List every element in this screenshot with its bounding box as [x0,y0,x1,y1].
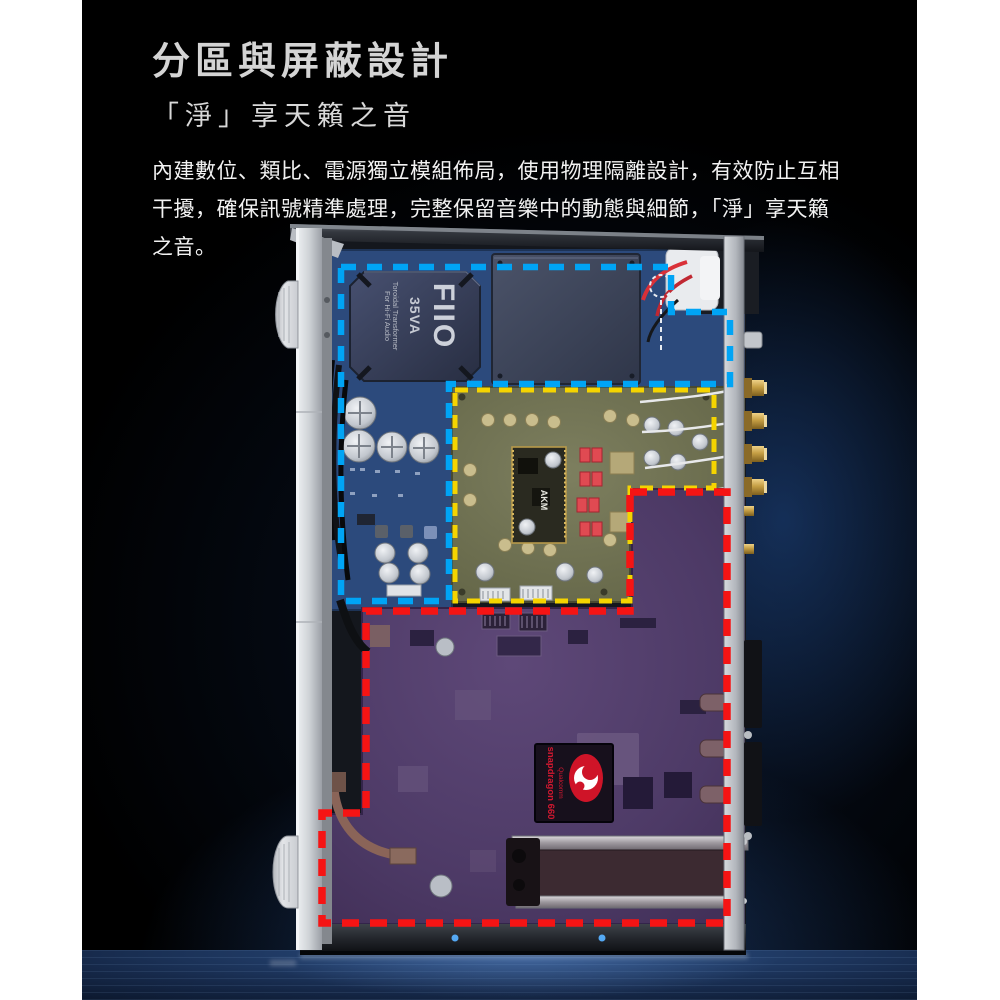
page-subtitle: 「淨」享天籟之音 [152,94,453,133]
marketing-page: 分區與屏蔽設計 「淨」享天籟之音 內建數位、類比、電源獨立模組佈局，使用物理隔離… [0,0,1000,1000]
dark-backdrop [82,0,917,1000]
knob-reflection [270,960,296,966]
intro-line-3: 之音。 [152,229,868,267]
page-title: 分區與屏蔽設計 [152,40,453,86]
intro-line-2: 干擾，確保訊號精準處理，完整保留音樂中的動態與細節，「淨」享天籟 [152,191,868,229]
header-block: 分區與屏蔽設計 「淨」享天籟之音 [152,40,453,133]
reflection-glow [262,957,782,999]
intro-paragraph: 內建數位、類比、電源獨立模組佈局，使用物理隔離設計，有效防止互相 干擾，確保訊號… [152,153,868,267]
intro-line-1: 內建數位、類比、電源獨立模組佈局，使用物理隔離設計，有效防止互相 [152,153,868,191]
